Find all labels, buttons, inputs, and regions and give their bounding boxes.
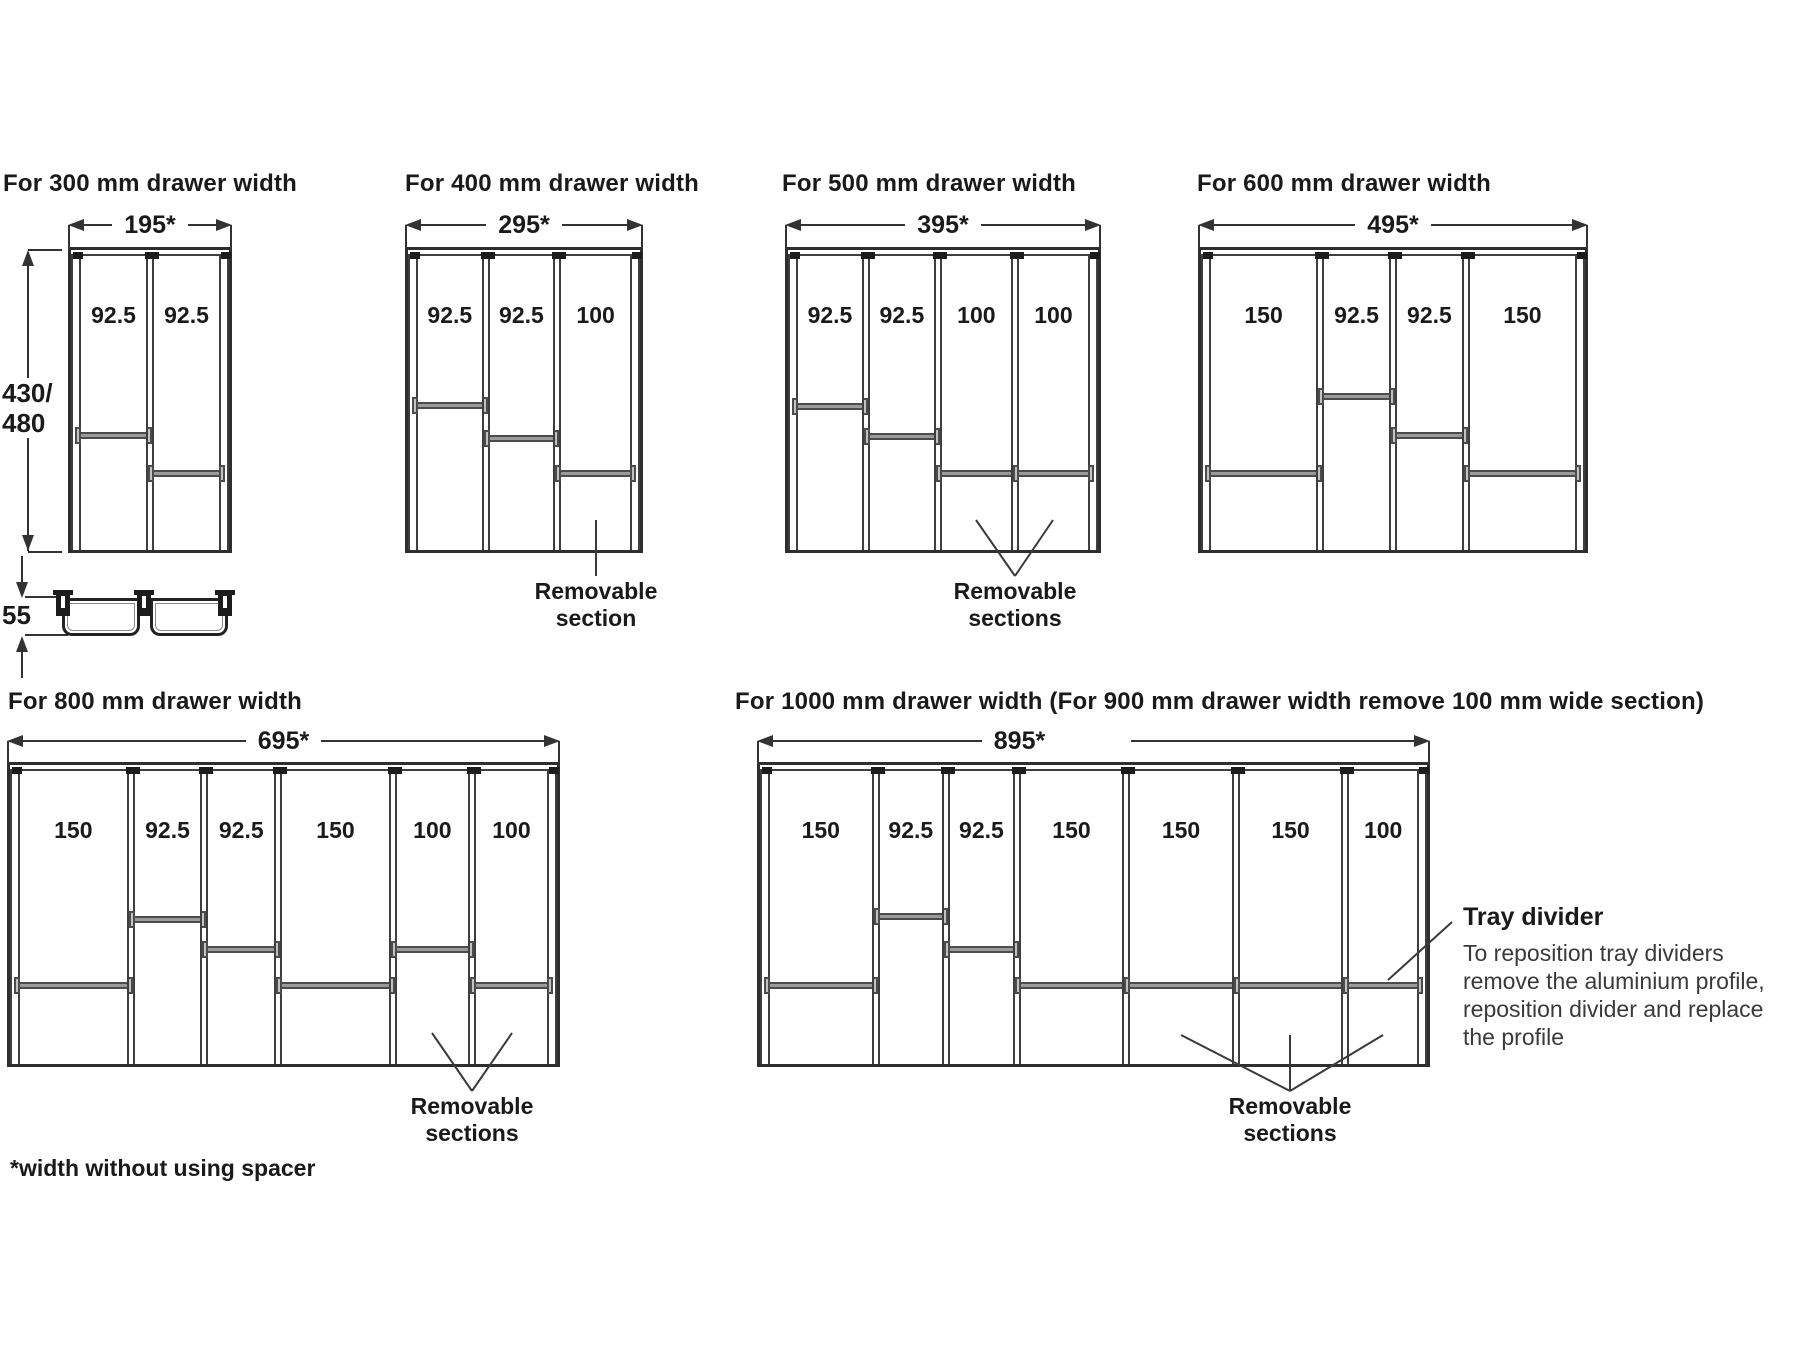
drawer-section: 100 bbox=[561, 254, 630, 550]
section-divider-wall bbox=[146, 254, 154, 550]
drawer-section: 92.5 bbox=[950, 769, 1013, 1064]
tray-divider-bar bbox=[152, 470, 221, 477]
drawer-section: 92.5 bbox=[154, 254, 219, 550]
tray-clip-right-icon bbox=[218, 590, 232, 616]
tray-divider-bar bbox=[1347, 982, 1419, 989]
section-divider-wall bbox=[1013, 769, 1021, 1064]
drawer-width-header: For 300 mm drawer width bbox=[3, 170, 297, 198]
drawer-section: 92.5 bbox=[81, 254, 146, 550]
drawer-plan-box: 15092.592.5150100100 bbox=[7, 762, 560, 1067]
dim-extension-left bbox=[68, 225, 70, 249]
section-width-label: 92.5 bbox=[418, 302, 482, 329]
depth-label-line1: 430/ bbox=[2, 378, 58, 408]
dim-line-right bbox=[321, 740, 544, 742]
section-divider-wall bbox=[1232, 769, 1240, 1064]
dim-extension-left bbox=[757, 741, 759, 765]
tray-divider-bar bbox=[1238, 982, 1344, 989]
drawer-insert-diagram: For 300 mm drawer width195*92.592.5For 4… bbox=[0, 0, 1800, 1350]
width-dimension-label: 895* bbox=[982, 727, 1057, 756]
drawer-plan-box: 92.592.5 bbox=[68, 247, 232, 553]
removable-annotation-line: sections bbox=[411, 1120, 534, 1147]
section-divider-wall bbox=[553, 254, 561, 550]
dim-extension-right bbox=[230, 225, 232, 249]
drawer-section: 92.5 bbox=[1397, 254, 1462, 550]
drawer-section: 92.5 bbox=[418, 254, 482, 550]
drawer-section: 92.5 bbox=[135, 769, 201, 1064]
drawer-plan-box: 92.592.5100 bbox=[405, 247, 643, 553]
section-divider-wall bbox=[1011, 254, 1019, 550]
dim-extension-right bbox=[641, 225, 643, 249]
width-dimension-label: 295* bbox=[486, 211, 561, 240]
drawer-section: 100 bbox=[476, 769, 547, 1064]
section-divider-wall bbox=[1389, 254, 1397, 550]
tray-divider-bar bbox=[1019, 982, 1125, 989]
dim-arrow-left-icon bbox=[405, 219, 421, 231]
removable-annotation-line: sections bbox=[1229, 1120, 1352, 1147]
width-dimension: 395* bbox=[785, 212, 1101, 238]
removable-annotation: Removablesections bbox=[411, 1093, 534, 1147]
tray-height-label: 55 bbox=[2, 600, 31, 630]
drawer-side-rail-left bbox=[1201, 254, 1211, 550]
drawer-section: 100 bbox=[1349, 769, 1417, 1064]
tray-divider-bar bbox=[948, 946, 1015, 953]
drawer-side-rail-right bbox=[1088, 254, 1098, 550]
tray-divider-bar bbox=[940, 470, 1013, 477]
tray-divider-bar bbox=[878, 913, 945, 920]
tray-clip-left-icon bbox=[56, 590, 70, 616]
section-width-label: 150 bbox=[1021, 817, 1123, 844]
section-divider-wall bbox=[274, 769, 282, 1064]
drawer-section: 92.5 bbox=[870, 254, 934, 550]
leader-lines-overlay bbox=[0, 0, 1800, 1350]
section-width-label: 150 bbox=[1470, 302, 1575, 329]
drawer-section: 150 bbox=[20, 769, 127, 1064]
section-divider-wall bbox=[1341, 769, 1349, 1064]
section-width-label: 150 bbox=[20, 817, 127, 844]
tray-divider-bar bbox=[559, 470, 632, 477]
tray-divider-bar bbox=[1322, 393, 1391, 400]
tray-divider-bar bbox=[1395, 432, 1464, 439]
section-divider-wall bbox=[200, 769, 208, 1064]
drawer-side-rail-left bbox=[760, 769, 770, 1064]
tray-divider-bar bbox=[280, 982, 391, 989]
section-width-label: 100 bbox=[476, 817, 547, 844]
drawer-section: 100 bbox=[397, 769, 468, 1064]
drawer-section: 92.5 bbox=[490, 254, 554, 550]
height-dim-lower-line bbox=[21, 650, 23, 678]
dim-arrow-left-icon bbox=[7, 735, 23, 747]
removable-annotation-line: section bbox=[535, 605, 658, 632]
removable-annotation-line: Removable bbox=[535, 578, 658, 605]
drawer-section: 92.5 bbox=[208, 769, 274, 1064]
depth-dim-arrow-up-icon bbox=[22, 250, 34, 266]
dim-line-right bbox=[188, 224, 216, 226]
section-width-label: 100 bbox=[1349, 817, 1417, 844]
tray-divider-bar bbox=[416, 402, 484, 409]
section-divider-wall bbox=[942, 769, 950, 1064]
tray-divider-bar bbox=[1017, 470, 1090, 477]
section-width-label: 150 bbox=[1240, 817, 1342, 844]
drawer-plan-box: 92.592.5100100 bbox=[785, 247, 1101, 553]
tray-side-view bbox=[56, 590, 238, 642]
tray-divider-note-title: Tray divider bbox=[1463, 903, 1603, 932]
section-divider-wall bbox=[1122, 769, 1130, 1064]
depth-dimension-label: 430/ 480 bbox=[2, 378, 58, 438]
dim-extension-right bbox=[1586, 225, 1588, 249]
removable-annotation-line: Removable bbox=[411, 1093, 534, 1120]
dim-arrow-left-icon bbox=[757, 735, 773, 747]
section-width-label: 92.5 bbox=[798, 302, 862, 329]
tray-divider-note-line: To reposition tray dividers bbox=[1463, 939, 1765, 967]
removable-annotation-line: Removable bbox=[1229, 1093, 1352, 1120]
section-width-label: 92.5 bbox=[208, 817, 274, 844]
drawer-width-header: For 1000 mm drawer width (For 900 mm dra… bbox=[735, 688, 1704, 716]
width-dimension-label: 495* bbox=[1355, 211, 1430, 240]
tray-divider-note-body: To reposition tray dividers remove the a… bbox=[1463, 939, 1765, 1051]
drawer-section: 150 bbox=[770, 769, 872, 1064]
section-width-label: 150 bbox=[770, 817, 872, 844]
dim-line-right bbox=[981, 224, 1085, 226]
section-divider-wall bbox=[862, 254, 870, 550]
section-width-label: 92.5 bbox=[880, 817, 943, 844]
drawer-width-header: For 600 mm drawer width bbox=[1197, 170, 1491, 198]
drawer-side-rail-right bbox=[219, 254, 229, 550]
width-dimension: 695* bbox=[7, 728, 560, 754]
drawer-side-rail-left bbox=[10, 769, 20, 1064]
section-width-label: 150 bbox=[1211, 302, 1316, 329]
removable-annotation-line: Removable bbox=[954, 578, 1077, 605]
dim-line-right bbox=[1431, 224, 1572, 226]
tray-bin-left bbox=[62, 598, 140, 636]
tray-divider-bar bbox=[395, 946, 470, 953]
dim-arrow-left-icon bbox=[785, 219, 801, 231]
dim-line-left bbox=[1214, 224, 1355, 226]
section-width-label: 100 bbox=[561, 302, 630, 329]
tray-divider-bar bbox=[1128, 982, 1234, 989]
tray-divider-note-line: the profile bbox=[1463, 1023, 1765, 1051]
dim-extension-right bbox=[558, 741, 560, 765]
drawer-section: 150 bbox=[282, 769, 389, 1064]
drawer-side-rail-right bbox=[630, 254, 640, 550]
tray-divider-note-line: remove the aluminium profile, bbox=[1463, 967, 1765, 995]
dim-extension-left bbox=[1198, 225, 1200, 249]
section-width-label: 100 bbox=[397, 817, 468, 844]
width-dimension: 495* bbox=[1198, 212, 1588, 238]
drawer-section: 150 bbox=[1130, 769, 1232, 1064]
section-width-label: 92.5 bbox=[135, 817, 201, 844]
drawer-section: 150 bbox=[1211, 254, 1316, 550]
dim-extension-left bbox=[785, 225, 787, 249]
drawer-section: 100 bbox=[942, 254, 1011, 550]
dim-arrow-left-icon bbox=[68, 219, 84, 231]
drawer-width-header: For 800 mm drawer width bbox=[8, 688, 302, 716]
tray-divider-bar bbox=[796, 403, 864, 410]
drawer-width-header: For 500 mm drawer width bbox=[782, 170, 1076, 198]
removable-annotation: Removablesections bbox=[954, 578, 1077, 632]
dim-line-left bbox=[421, 224, 486, 226]
tray-divider-note-line: reposition divider and replace bbox=[1463, 995, 1765, 1023]
dim-line-right bbox=[1131, 740, 1414, 742]
width-dimension-label: 395* bbox=[905, 211, 980, 240]
dim-line-right bbox=[562, 224, 627, 226]
width-dimension: 195* bbox=[68, 212, 232, 238]
section-width-label: 92.5 bbox=[1397, 302, 1462, 329]
section-divider-wall bbox=[482, 254, 490, 550]
section-width-label: 150 bbox=[1130, 817, 1232, 844]
tray-divider-bar bbox=[868, 433, 936, 440]
drawer-section: 92.5 bbox=[880, 769, 943, 1064]
drawer-section: 100 bbox=[1019, 254, 1088, 550]
tray-bin-right bbox=[150, 598, 228, 636]
section-width-label: 100 bbox=[1019, 302, 1088, 329]
section-divider-wall bbox=[389, 769, 397, 1064]
tray-divider-bar bbox=[474, 982, 549, 989]
width-dimension-label: 695* bbox=[246, 727, 321, 756]
dim-extension-right bbox=[1428, 741, 1430, 765]
depth-label-line2: 480 bbox=[2, 408, 58, 438]
section-divider-wall bbox=[1462, 254, 1470, 550]
section-width-label: 92.5 bbox=[154, 302, 219, 329]
tray-divider-bar bbox=[133, 916, 203, 923]
width-dimension: 295* bbox=[405, 212, 643, 238]
dim-extension-left bbox=[405, 225, 407, 249]
removable-annotation: Removablesection bbox=[535, 578, 658, 632]
drawer-side-rail-right bbox=[1417, 769, 1427, 1064]
section-width-label: 92.5 bbox=[81, 302, 146, 329]
depth-dim-tick-top bbox=[28, 249, 62, 251]
dim-arrow-left-icon bbox=[1198, 219, 1214, 231]
tray-divider-bar bbox=[1209, 470, 1318, 477]
drawer-section: 92.5 bbox=[798, 254, 862, 550]
drawer-section: 150 bbox=[1470, 254, 1575, 550]
drawer-section: 150 bbox=[1240, 769, 1342, 1064]
tray-divider-bar bbox=[18, 982, 129, 989]
tray-divider-bar bbox=[1468, 470, 1577, 477]
drawer-side-rail-left bbox=[71, 254, 81, 550]
drawer-plan-box: 15092.592.5150 bbox=[1198, 247, 1588, 553]
dim-extension-left bbox=[7, 741, 9, 765]
depth-dim-tick-bottom bbox=[28, 551, 62, 553]
section-width-label: 100 bbox=[942, 302, 1011, 329]
drawer-plan-box: 15092.592.5150150150100 bbox=[757, 762, 1430, 1067]
dim-line-left bbox=[84, 224, 112, 226]
section-divider-wall bbox=[468, 769, 476, 1064]
tray-divider-bar bbox=[768, 982, 874, 989]
drawer-width-header: For 400 mm drawer width bbox=[405, 170, 699, 198]
drawer-side-rail-right bbox=[547, 769, 557, 1064]
removable-annotation: Removablesections bbox=[1229, 1093, 1352, 1147]
section-width-label: 92.5 bbox=[1324, 302, 1389, 329]
width-dimension: 895* bbox=[757, 728, 1430, 754]
dim-line-left bbox=[801, 224, 905, 226]
section-width-label: 92.5 bbox=[490, 302, 554, 329]
drawer-section: 92.5 bbox=[1324, 254, 1389, 550]
section-width-label: 92.5 bbox=[870, 302, 934, 329]
drawer-side-rail-right bbox=[1575, 254, 1585, 550]
depth-dim-arrow-down-icon bbox=[22, 535, 34, 551]
section-divider-wall bbox=[934, 254, 942, 550]
removable-annotation-line: sections bbox=[954, 605, 1077, 632]
dim-extension-right bbox=[1099, 225, 1101, 249]
width-dimension-label: 195* bbox=[112, 211, 187, 240]
width-footnote: *width without using spacer bbox=[10, 1155, 315, 1182]
section-width-label: 92.5 bbox=[950, 817, 1013, 844]
dim-line-left bbox=[23, 740, 246, 742]
tray-divider-bar bbox=[488, 435, 556, 442]
tray-divider-bar bbox=[79, 432, 148, 439]
drawer-section: 150 bbox=[1021, 769, 1123, 1064]
tray-divider-bar bbox=[206, 946, 276, 953]
tray-clip-middle-icon bbox=[137, 590, 151, 616]
section-width-label: 150 bbox=[282, 817, 389, 844]
